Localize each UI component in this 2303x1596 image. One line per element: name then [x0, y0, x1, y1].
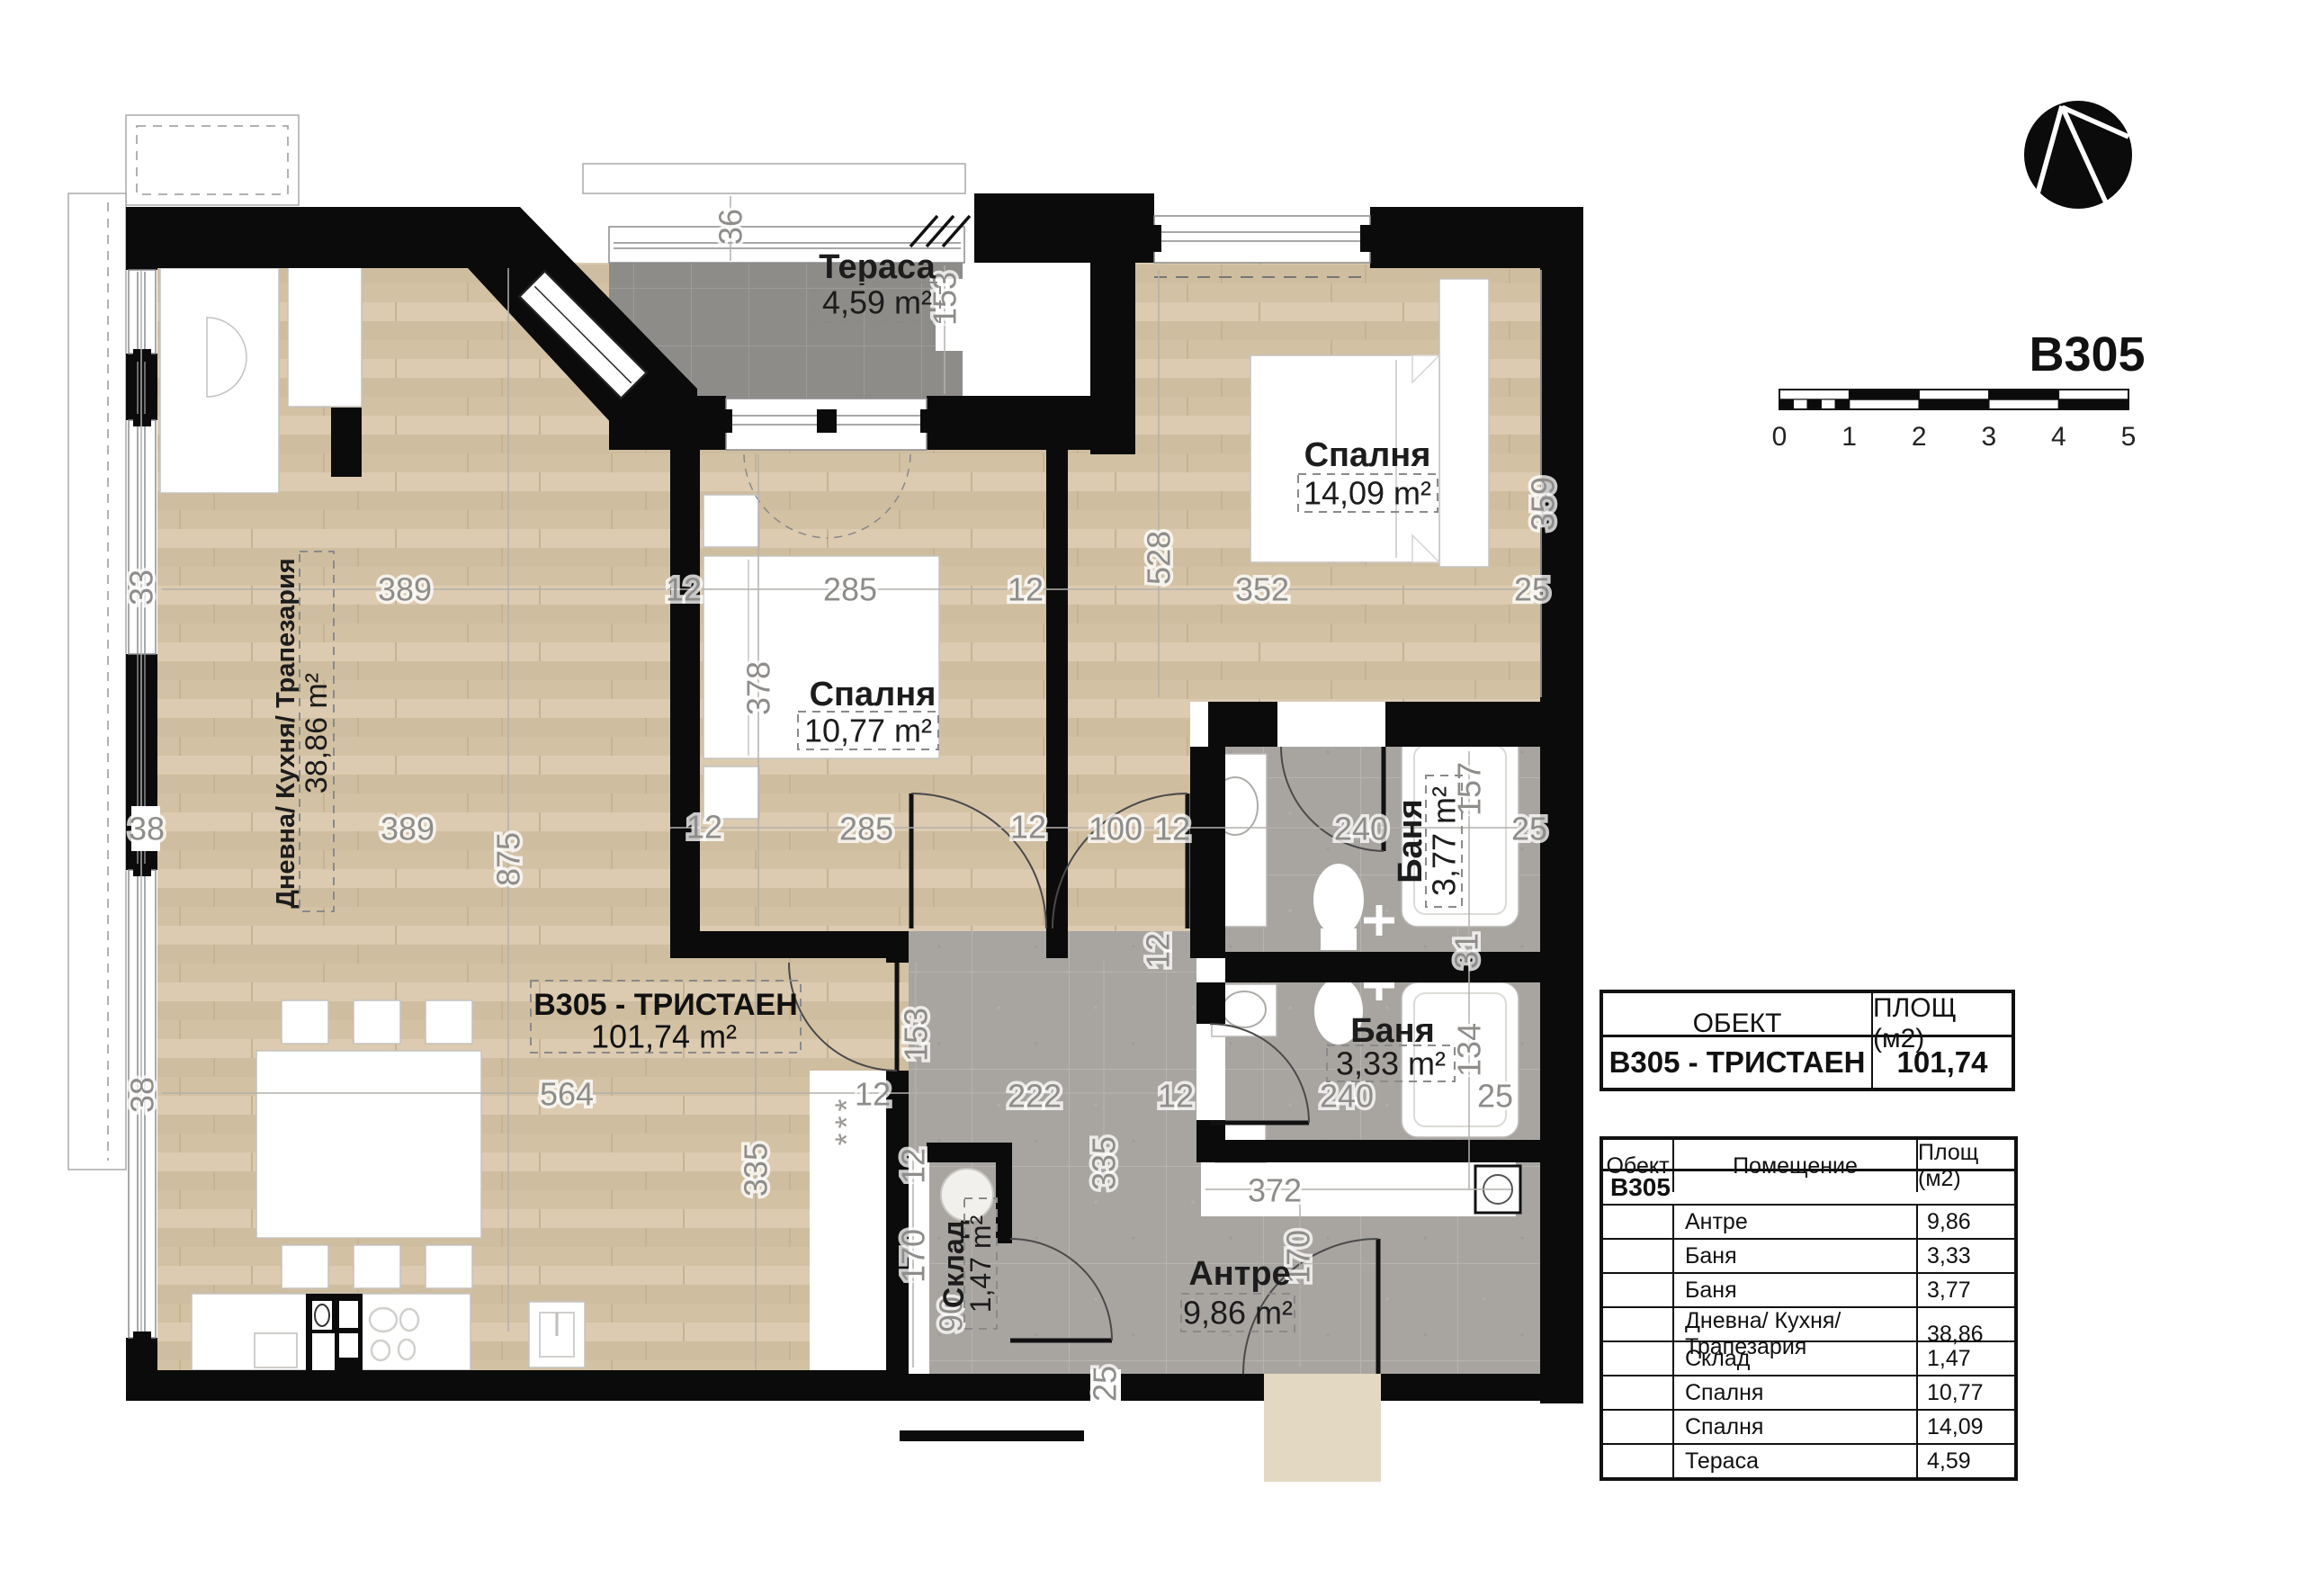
room-area: 1,47	[1918, 1342, 2014, 1375]
scale-tick: 4	[2051, 422, 2066, 452]
dim: 240	[1320, 1078, 1374, 1115]
table-row: Склад 1,47	[1603, 1342, 2014, 1376]
scale-tick: 2	[1912, 422, 1927, 452]
dim: 12	[1154, 811, 1190, 847]
room-name: Антре	[1674, 1206, 1918, 1238]
unit-area: 101,74 m²	[591, 1018, 737, 1055]
room-name: Баня	[1674, 1240, 1918, 1272]
room-label-hall: Антре	[1188, 1255, 1290, 1293]
room-label-living: Дневна/ Кухня/ Трапезария	[272, 558, 300, 908]
room-name: Склад	[1674, 1342, 1918, 1375]
room-area-bedroom-mid: 10,77 m²	[804, 713, 932, 749]
table-row: Спалня 10,77	[1603, 1376, 2014, 1411]
dim: 31	[1448, 933, 1485, 969]
toilet	[1313, 864, 1364, 936]
room-area-bath-bottom: 3,33 m²	[1336, 1045, 1446, 1082]
unit-name: B305 - ТРИСТАЕН	[533, 988, 798, 1022]
unit-code-title: B305	[2029, 327, 2145, 381]
room-area: 10,77	[1918, 1376, 2014, 1409]
dim: 25	[1087, 1366, 1124, 1402]
dim: 335	[738, 1143, 775, 1197]
dim: 25	[1514, 571, 1550, 608]
table-row: Антре 9,86	[1603, 1206, 2014, 1240]
room-label-bath-top: Баня	[1392, 799, 1429, 883]
closet-marks: ***	[829, 1094, 865, 1145]
boiler	[941, 1169, 993, 1221]
scale-bar: 0 1 2 3 4 5	[1772, 390, 2137, 452]
dim: 372	[1248, 1172, 1302, 1209]
room-area-bath-top: 3,77 m²	[1426, 786, 1463, 896]
room-area-terrace: 4,59 m²	[822, 284, 932, 321]
dim: 240	[1334, 811, 1388, 847]
room-name: Спалня	[1674, 1411, 1918, 1443]
dim: 12	[1008, 571, 1044, 608]
dim: 25	[1477, 1078, 1513, 1115]
dim: 352	[1235, 571, 1289, 608]
dim: 170	[895, 1229, 932, 1283]
dim: 12	[666, 571, 702, 608]
room-area-living: 38,86 m²	[300, 673, 334, 794]
summary-table: ОБЕКТ ПЛОЩ (м2) B305 - ТРИСТАЕН 101,74	[1600, 990, 2015, 1091]
dim: 33	[123, 569, 160, 605]
dim: 285	[839, 811, 893, 847]
entrance-landing	[1264, 1374, 1381, 1482]
architect-logo	[2024, 101, 2132, 209]
storage-fixtures	[941, 1169, 993, 1221]
rooms-col-area: Площ (м2)	[1918, 1140, 2014, 1192]
dim: 564	[540, 1076, 594, 1113]
scale-tick: 0	[1772, 422, 1788, 452]
dim: 12	[686, 809, 722, 846]
table-row: Баня 3,33	[1603, 1240, 2014, 1274]
dim: 25	[1511, 811, 1547, 847]
room-area: 3,33	[1918, 1240, 2014, 1272]
table-row: Дневна/ Кухня/ Трапезария 38,86	[1603, 1308, 2014, 1342]
room-area: 4,59	[1918, 1445, 2014, 1477]
dim: 38	[124, 1077, 161, 1113]
room-label-terrace: Тераса	[819, 248, 936, 286]
dim: 389	[378, 571, 432, 608]
summary-row: B305 - ТРИСТАЕН 101,74	[1603, 1037, 2012, 1088]
dim: 335	[1086, 1136, 1123, 1190]
table-row: Спалня 14,09	[1603, 1411, 2014, 1445]
room-area-storage: 1,47 m²	[964, 1215, 997, 1313]
dining-table	[256, 1051, 481, 1238]
room-label-bedroom-right: Спалня	[1304, 436, 1431, 474]
dim: 389	[381, 811, 435, 847]
bedroom-window	[1154, 216, 1370, 263]
rooms-table: Обект Помещение Площ (м2) B305 Антре 9,8…	[1600, 1136, 2018, 1481]
floor-plan-sheet: 36 153 389 12 285 12 528 352 25 359 378 …	[0, 0, 2303, 1596]
dim: 38	[129, 811, 165, 847]
room-area: 3,77	[1918, 1274, 2014, 1306]
table-row: Баня 3,77	[1603, 1274, 2014, 1308]
scale-tick: 3	[1981, 422, 1996, 452]
table-row: Тераса 4,59	[1603, 1445, 2014, 1477]
room-label-bedroom-mid: Спалня	[810, 676, 936, 713]
room-area: 14,09	[1918, 1411, 2014, 1443]
dim: 134	[1451, 1023, 1488, 1077]
dim: 12	[1010, 809, 1046, 846]
dim: 153	[898, 1008, 935, 1062]
dim: 12	[1140, 933, 1177, 969]
summary-area: 101,74	[1873, 1037, 2012, 1088]
dim: 528	[1141, 531, 1178, 585]
summary-object: B305 - ТРИСТАЕН	[1603, 1037, 1873, 1088]
room-name: Тераса	[1674, 1445, 1918, 1477]
dim: 36	[712, 209, 749, 245]
dim: 378	[740, 661, 777, 715]
dim: 100	[1089, 811, 1143, 847]
scale-tick: 1	[1842, 422, 1857, 452]
room-area-bedroom-right: 14,09 m²	[1304, 475, 1431, 512]
dim: 12	[895, 1148, 932, 1184]
dim: 12	[1158, 1078, 1194, 1115]
dim: 359	[1525, 477, 1562, 531]
room-area-hall: 9,86 m²	[1183, 1295, 1293, 1331]
room-name: Спалня	[1674, 1376, 1918, 1409]
dim: 222	[1008, 1078, 1062, 1115]
room-area: 9,86	[1918, 1206, 2014, 1238]
title-block: B305 0 1 2 3 4 5	[1772, 101, 2146, 452]
scale-tick: 5	[2121, 422, 2137, 452]
rooms-col-room: Помещение	[1674, 1140, 1918, 1192]
dim: 875	[490, 832, 527, 886]
dim: 285	[823, 571, 877, 608]
room-name: Баня	[1674, 1274, 1918, 1306]
